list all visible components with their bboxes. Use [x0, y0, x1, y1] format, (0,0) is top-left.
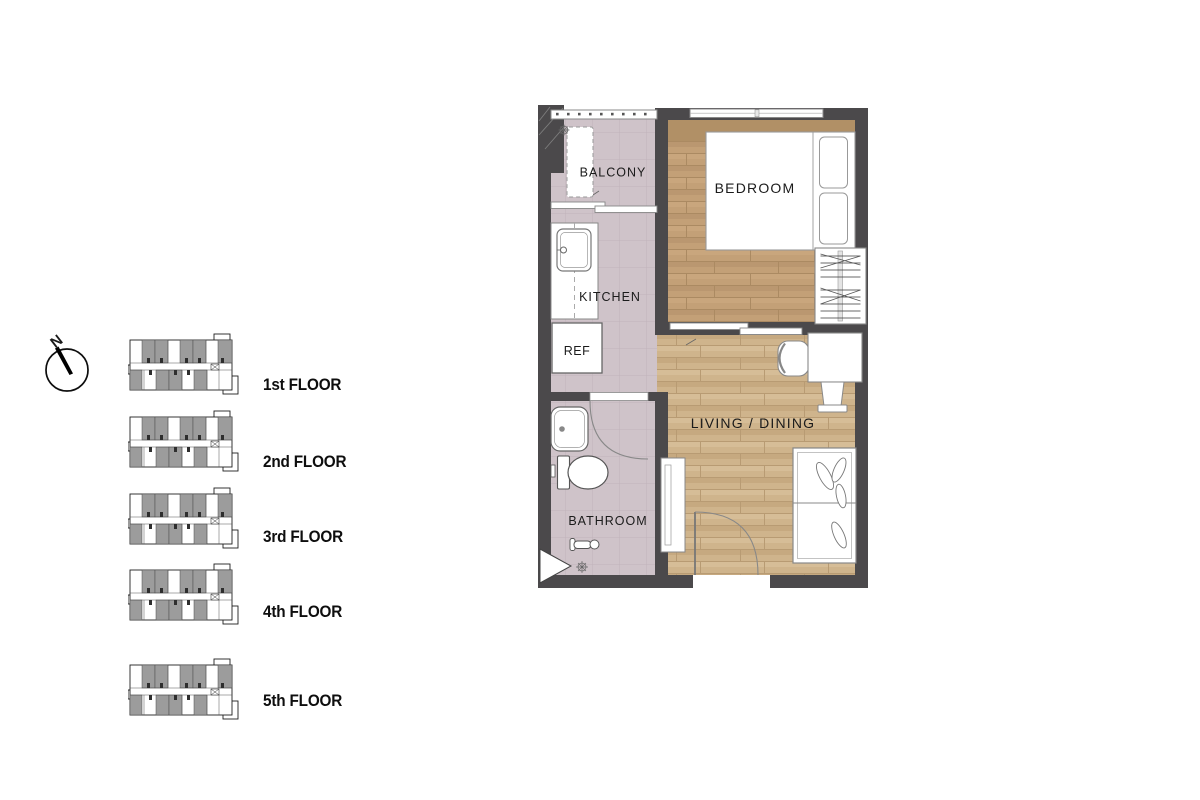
balcony-railing — [551, 110, 657, 119]
tv-console — [661, 458, 685, 552]
kitchen-label: KITCHEN — [579, 290, 641, 304]
floor-thumbnail-4 — [128, 563, 240, 629]
unit-floor-plan: BALCONY KITCHEN REF BATHROOM BEDROOM LIV… — [538, 105, 868, 590]
floor-label-3: 3rd FLOOR — [263, 527, 343, 547]
sofa — [793, 448, 856, 563]
floor-thumbnail-5 — [128, 658, 240, 724]
balcony-unit-dashed — [567, 127, 593, 197]
floor-plan-page: N 1st FLOOR 2nd FLOOR 3rd FLOOR 4th FLOO… — [0, 0, 1200, 800]
floor-thumbnail-2 — [128, 410, 240, 476]
floor-thumbnail-3 — [128, 487, 240, 553]
floor-thumbnail-1 — [128, 333, 240, 399]
refrigerator-label: REF — [564, 344, 591, 358]
compass: N — [40, 330, 98, 402]
bedroom-label: BEDROOM — [715, 180, 796, 196]
floor-label-2: 2nd FLOOR — [263, 452, 346, 472]
bedroom-window — [690, 109, 823, 118]
pillow — [820, 193, 848, 244]
floor-label-5: 5th FLOOR — [263, 691, 342, 711]
toilet — [551, 456, 608, 489]
floor-label-1: 1st FLOOR — [263, 375, 341, 395]
wardrobe — [815, 248, 866, 324]
bathroom-sink — [551, 407, 588, 451]
kitchen-counter — [551, 223, 598, 319]
floor-label-4: 4th FLOOR — [263, 602, 342, 622]
balcony-label: BALCONY — [580, 166, 647, 180]
bathroom-label: BATHROOM — [568, 514, 647, 528]
pillow — [820, 137, 848, 188]
kitchen-faucet — [561, 247, 567, 253]
dining-chair — [778, 341, 809, 376]
living-dining-label: LIVING / DINING — [691, 415, 816, 431]
